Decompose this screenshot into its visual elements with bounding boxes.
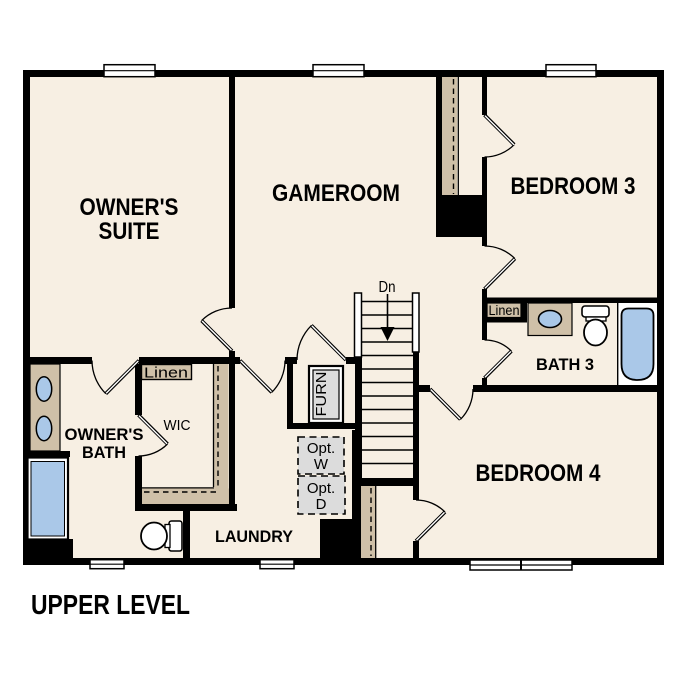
svg-text:BATH: BATH [82,443,126,462]
svg-text:BEDROOM 4: BEDROOM 4 [476,460,602,487]
svg-text:Opt.: Opt. [307,440,335,457]
svg-text:FURN: FURN [313,372,330,417]
svg-text:Linen: Linen [489,303,520,318]
svg-text:Linen: Linen [144,365,188,382]
svg-text:BEDROOM 3: BEDROOM 3 [511,173,636,200]
svg-text:D: D [316,496,327,513]
svg-text:LAUNDRY: LAUNDRY [215,527,294,546]
svg-text:UPPER LEVEL: UPPER LEVEL [31,589,190,620]
svg-text:Dn: Dn [379,279,396,296]
svg-text:WIC: WIC [164,417,191,434]
svg-text:W: W [314,456,329,473]
svg-text:Opt.: Opt. [307,480,335,497]
svg-text:GAMEROOM: GAMEROOM [272,180,400,207]
svg-text:SUITE: SUITE [99,218,160,245]
svg-text:OWNER'S: OWNER'S [65,425,144,444]
svg-text:OWNER'S: OWNER'S [80,194,179,221]
svg-text:BATH 3: BATH 3 [536,355,594,374]
